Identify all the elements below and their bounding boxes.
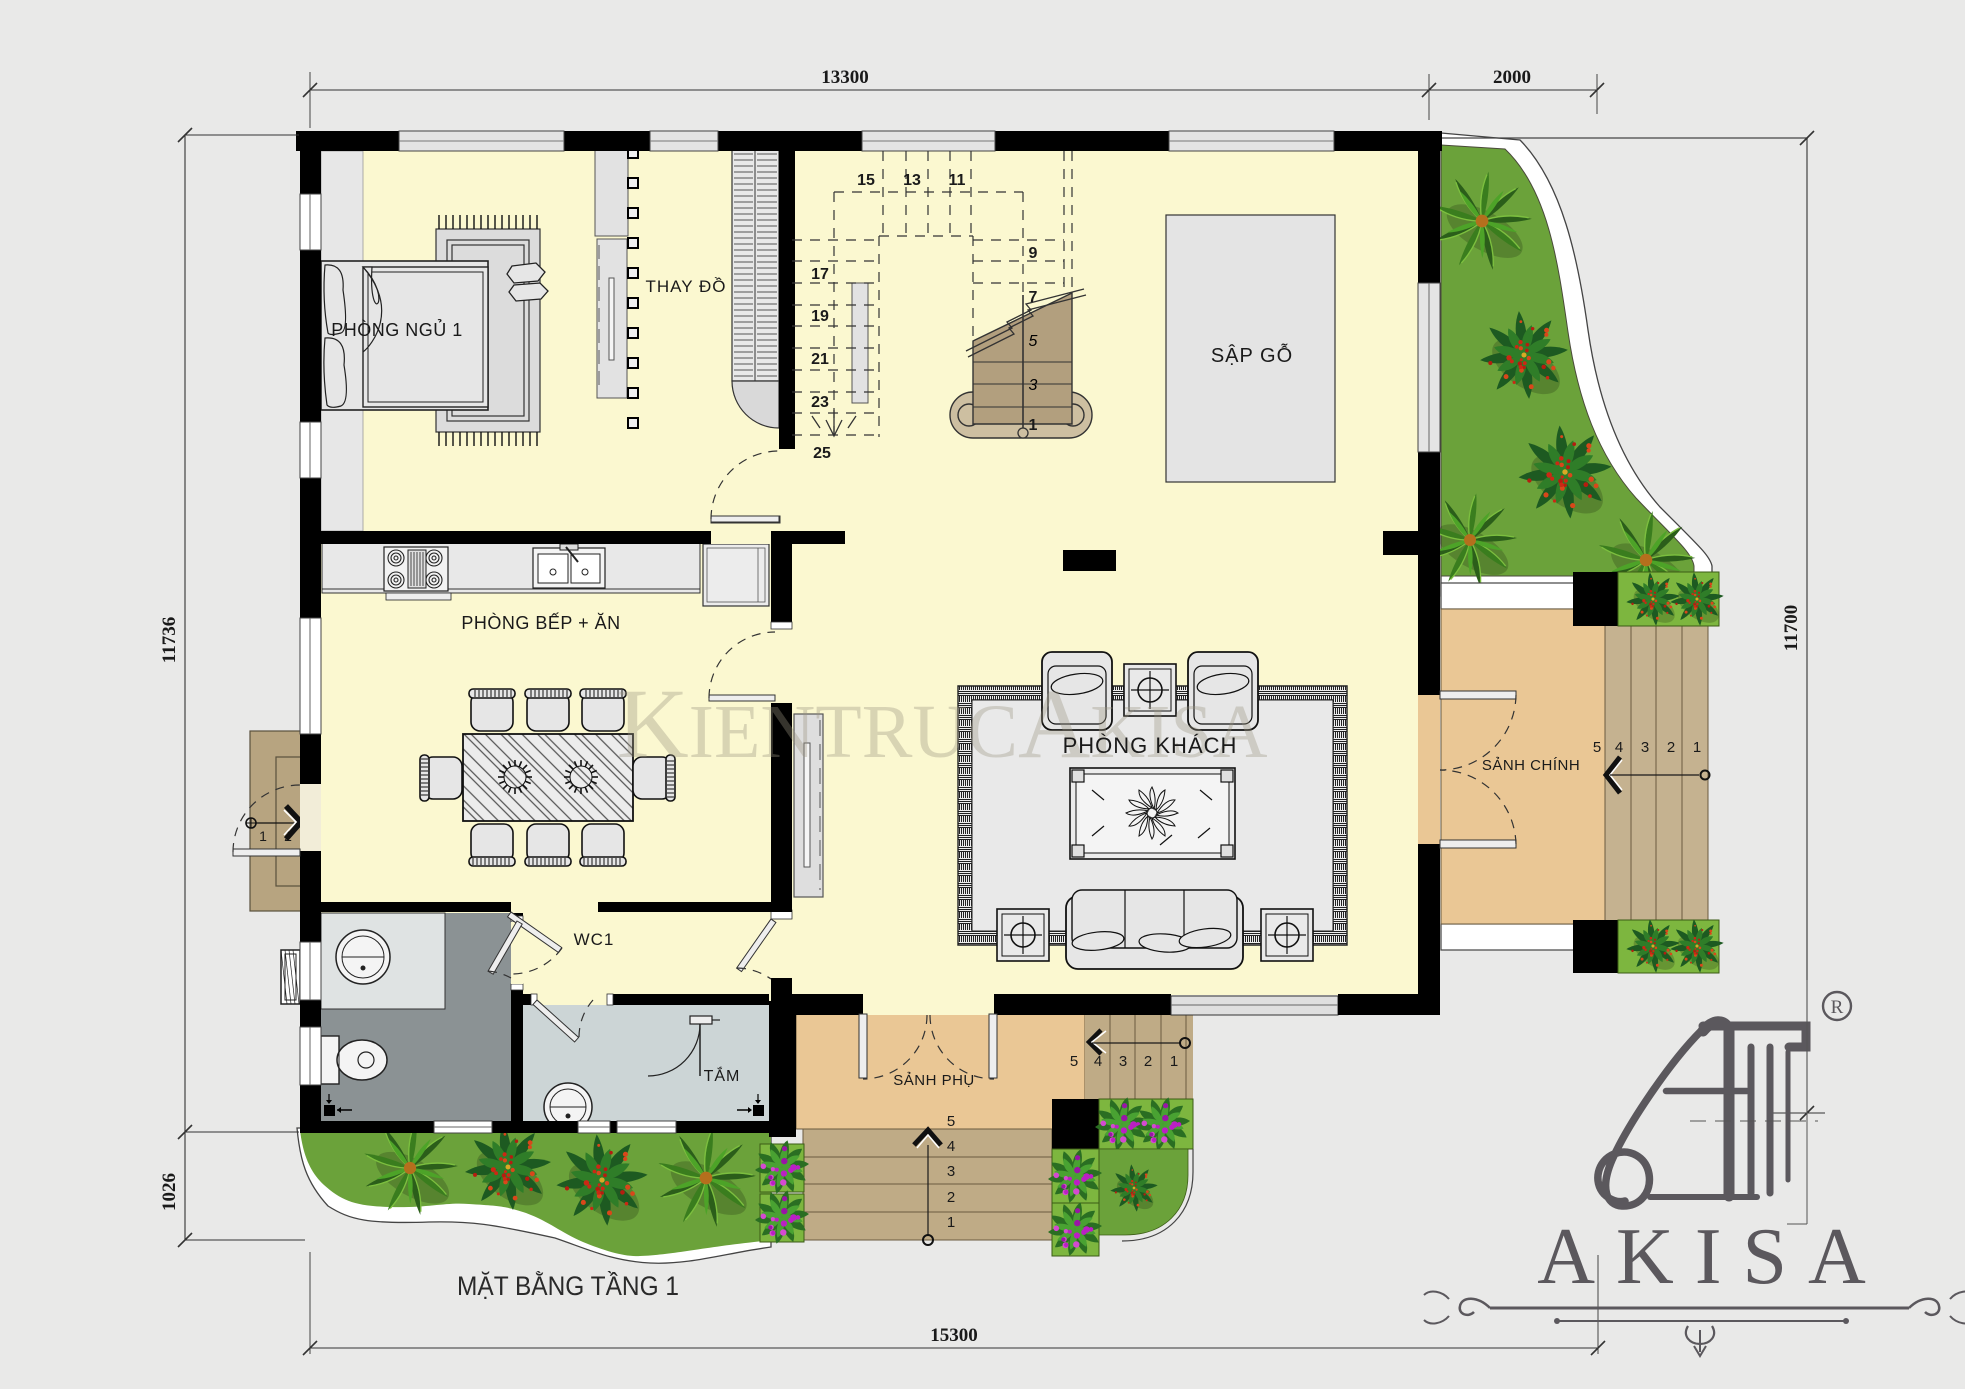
svg-text:MẶT BẰNG TẦNG 1: MẶT BẰNG TẦNG 1 <box>457 1270 679 1301</box>
svg-text:3: 3 <box>947 1163 955 1180</box>
svg-text:WC1: WC1 <box>574 930 615 949</box>
svg-text:1026: 1026 <box>159 1173 180 1211</box>
svg-text:1: 1 <box>1029 417 1038 434</box>
svg-text:5: 5 <box>1070 1053 1078 1070</box>
svg-text:11: 11 <box>949 172 966 189</box>
svg-text:7: 7 <box>1029 289 1038 306</box>
svg-text:TẮM: TẮM <box>704 1066 741 1085</box>
svg-text:5: 5 <box>1029 333 1038 350</box>
svg-text:15300: 15300 <box>930 1325 978 1346</box>
svg-text:9: 9 <box>1029 245 1038 262</box>
svg-text:25: 25 <box>813 445 831 462</box>
svg-text:2: 2 <box>1144 1053 1152 1070</box>
svg-text:3: 3 <box>1029 377 1038 394</box>
svg-text:19: 19 <box>811 308 829 325</box>
svg-text:1: 1 <box>1170 1053 1178 1070</box>
svg-text:2000: 2000 <box>1493 67 1531 88</box>
svg-text:SẬP GỖ: SẬP GỖ <box>1211 343 1293 367</box>
svg-text:5: 5 <box>947 1113 955 1130</box>
svg-text:17: 17 <box>811 266 829 283</box>
svg-text:3: 3 <box>1119 1053 1127 1070</box>
svg-text:5: 5 <box>1593 739 1601 756</box>
svg-text:PHÒNG NGỦ 1: PHÒNG NGỦ 1 <box>331 319 463 340</box>
svg-text:3: 3 <box>1641 739 1649 756</box>
svg-text:4: 4 <box>1094 1053 1102 1070</box>
svg-text:THAY ĐỒ: THAY ĐỒ <box>646 277 727 296</box>
svg-text:13: 13 <box>903 172 921 189</box>
svg-text:2: 2 <box>1667 739 1675 756</box>
svg-text:23: 23 <box>811 394 829 411</box>
svg-text:SẢNH CHÍNH: SẢNH CHÍNH <box>1482 757 1580 774</box>
svg-text:11736: 11736 <box>159 617 180 663</box>
svg-text:PHÒNG KHÁCH: PHÒNG KHÁCH <box>1063 733 1238 758</box>
svg-text:R: R <box>1831 997 1844 1018</box>
svg-text:1: 1 <box>259 828 267 844</box>
svg-text:SẢNH PHỤ: SẢNH PHỤ <box>893 1072 975 1089</box>
svg-text:21: 21 <box>811 351 829 368</box>
svg-text:2: 2 <box>947 1189 955 1206</box>
svg-text:1: 1 <box>1693 739 1701 756</box>
svg-text:1: 1 <box>947 1214 955 1231</box>
svg-text:15: 15 <box>857 172 875 189</box>
svg-text:11700: 11700 <box>1781 605 1802 651</box>
svg-text:PHÒNG BẾP + ĂN: PHÒNG BẾP + ĂN <box>461 612 620 633</box>
svg-text:4: 4 <box>947 1138 955 1155</box>
svg-text:13300: 13300 <box>821 67 869 88</box>
svg-text:4: 4 <box>1615 739 1623 756</box>
svg-text:AKISA: AKISA <box>1537 1213 1886 1301</box>
